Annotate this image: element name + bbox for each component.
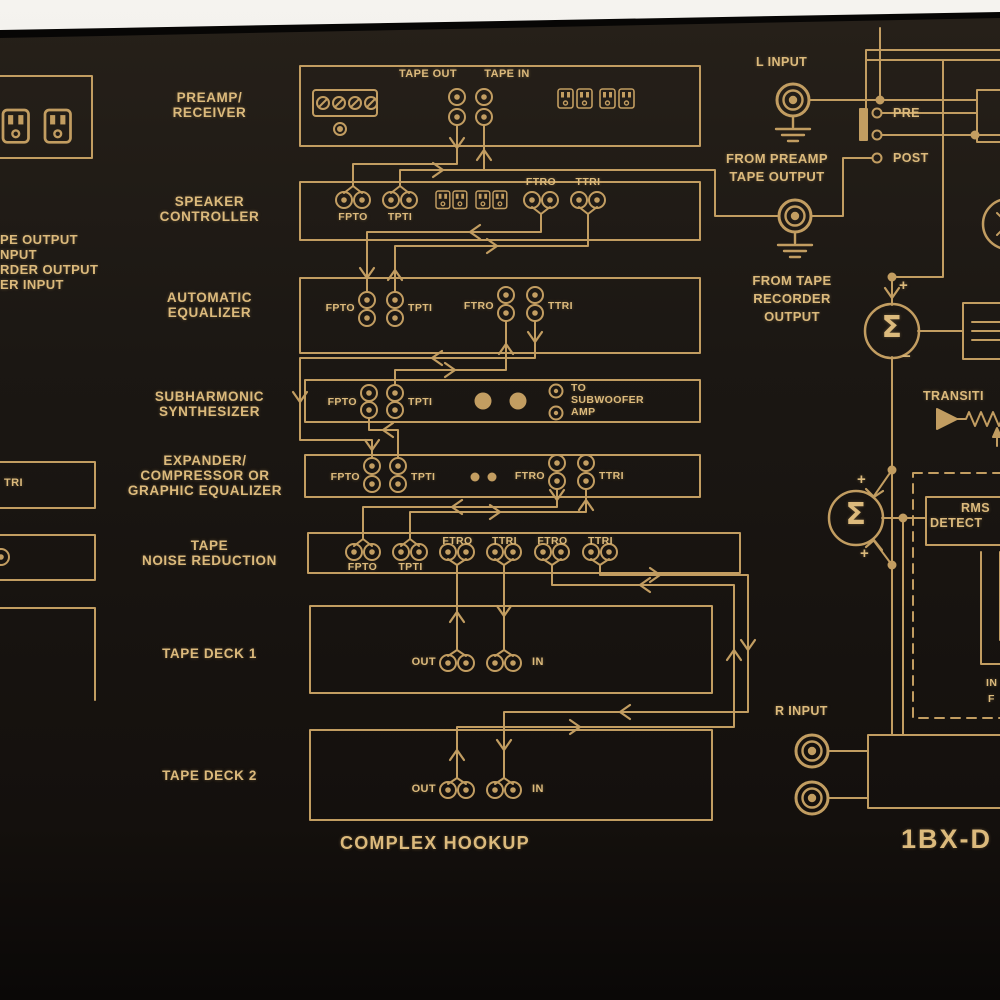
expander-tpti-label: TPTI (411, 471, 435, 483)
pre-post-switch-bar (860, 109, 867, 140)
td2-in-label: IN (532, 783, 544, 795)
transition-truncated-label: TRANSITI (923, 389, 984, 403)
post-label: POST (893, 151, 929, 165)
label-subharmonic-synthesizer: SUBHARMONIC SYNTHESIZER (127, 389, 292, 419)
td1-out-label: OUT (402, 656, 436, 668)
nr-ttri2-label: TTRI (578, 535, 623, 547)
caption-complex-hookup: COMPLEX HOOKUP (340, 833, 530, 854)
l-input-label: L INPUT (756, 55, 807, 69)
subharm-tpti-label: TPTI (408, 396, 432, 408)
partial-text-in: IN (986, 677, 997, 689)
nr-ftro2-label: FTRO (530, 535, 575, 547)
from-tape-recorder-label: FROM TAPE RECORDER OUTPUT (733, 272, 851, 326)
label-tape-deck-1: TAPE DECK 1 (127, 646, 292, 661)
expander-fpto-label: FPTO (316, 471, 360, 483)
sigma-2-glyph: Σ (842, 500, 870, 530)
label-expander: EXPANDER/ COMPRESSOR OR GRAPHIC EQUALIZE… (115, 453, 295, 498)
subwoofer-note: TO SUBWOOFER AMP (571, 382, 644, 418)
from-preamp-label: FROM PREAMP TAPE OUTPUT (716, 150, 838, 186)
label-preamp-receiver: PREAMP/ RECEIVER (127, 90, 292, 120)
sigma2-plus-top: + (857, 472, 866, 487)
speaker-ttri-label: TTRI (566, 176, 610, 188)
nr-tpti-label: TPTI (388, 561, 433, 573)
detect-label: DETECT (930, 516, 982, 530)
left-truncated-line-1: PE OUTPUT (0, 232, 78, 247)
speaker-fpto-label: FPTO (331, 211, 375, 223)
left-truncated-line-2: NPUT (0, 247, 37, 262)
pre-label: PRE (893, 106, 920, 120)
label-tape-deck-2: TAPE DECK 2 (127, 768, 292, 783)
partial-text-f: F (988, 693, 995, 705)
expander-ttri-label: TTRI (599, 470, 624, 482)
left-truncated-line-4: ER INPUT (0, 277, 64, 292)
autoeq-tpti-label: TPTI (408, 302, 432, 314)
left-truncated-line-3: RDER OUTPUT (0, 262, 98, 277)
expander-ftro-label: FTRO (503, 470, 545, 482)
sigma1-plus: + (899, 278, 908, 293)
autoeq-ttri-label: TTRI (548, 300, 573, 312)
nr-ftro1-label: FTRO (435, 535, 480, 547)
left-truncated-jack-label: TRI (4, 477, 23, 489)
r-input-label: R INPUT (775, 704, 828, 718)
autoeq-fpto-label: FPTO (313, 302, 355, 314)
rms-label: RMS (961, 501, 990, 515)
nr-ttri1-label: TTRI (482, 535, 527, 547)
autoeq-ftro-label: FTRO (452, 300, 494, 312)
subharm-fpto-label: FPTO (313, 396, 357, 408)
sigma2-plus-bottom: + (860, 546, 869, 561)
model-number: 1BX-D (901, 824, 992, 855)
label-speaker-controller: SPEAKER CONTROLLER (127, 194, 292, 224)
panel-photo-scene: PE OUTPUT NPUT RDER OUTPUT ER INPUT TRI … (0, 0, 1000, 1000)
tape-in-label: TAPE IN (472, 68, 542, 80)
td2-out-label: OUT (402, 783, 436, 795)
label-tape-noise-reduction: TAPE NOISE REDUCTION (127, 538, 292, 568)
label-automatic-equalizer: AUTOMATIC EQUALIZER (127, 290, 292, 320)
speaker-ftro-label: FTRO (519, 176, 563, 188)
td1-in-label: IN (532, 656, 544, 668)
photo-of-panel: { "colors": {"gold": "#c9a365", "gold_te… (0, 0, 1000, 1000)
sigma-1-glyph: Σ (878, 313, 906, 343)
sigma1-minus: − (902, 349, 911, 364)
speaker-tpti-label: TPTI (378, 211, 422, 223)
tape-out-label: TAPE OUT (390, 68, 466, 80)
nr-fpto-label: FPTO (340, 561, 385, 573)
